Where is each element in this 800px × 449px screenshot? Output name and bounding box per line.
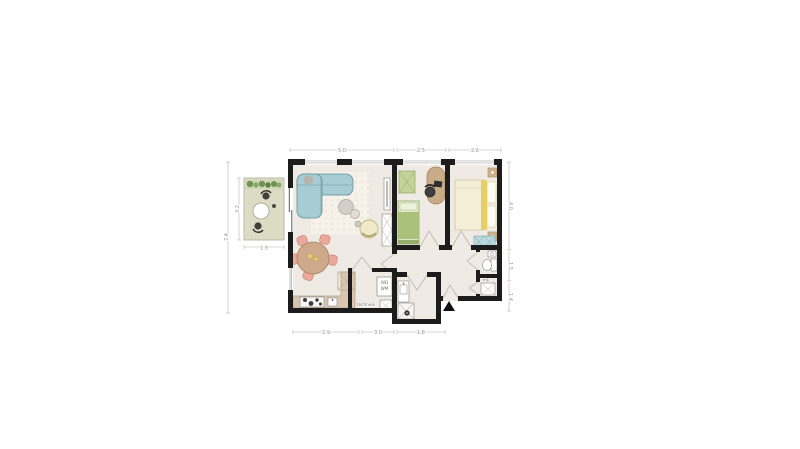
dim-top-1: 5.0 [338, 148, 346, 154]
armchair [360, 220, 378, 238]
entrance-arrow-icon [443, 301, 455, 311]
nightstand [488, 168, 497, 177]
floor-plan-canvas: WD WM techniek mk [0, 0, 800, 449]
techniek-label: techniek [357, 302, 376, 307]
washer-dryer-label-wm: WM [381, 286, 389, 291]
wardrobe-small-bedroom [399, 171, 415, 193]
dim-bottom-3: 1.8 [417, 330, 425, 336]
window [403, 159, 441, 165]
dining-table [297, 242, 329, 274]
cooktop [300, 297, 324, 307]
window [305, 159, 337, 165]
dim-terrace-width: 1.9 [260, 246, 268, 252]
dim-bottom-1: 2.9 [322, 330, 330, 336]
office-chair [425, 185, 435, 197]
dim-right-3: 1.4 [507, 293, 513, 301]
window [288, 268, 293, 290]
bathroom-vanity [398, 281, 409, 302]
washer-dryer: WD WM [377, 277, 392, 296]
dim-right-2: 1.5 [507, 262, 513, 270]
tv-cabinet [384, 178, 390, 210]
meter-closet-label: mk [483, 278, 490, 283]
window [455, 159, 494, 165]
table-decor [308, 254, 312, 258]
window [352, 159, 384, 165]
dim-right-1: 4.0 [507, 202, 513, 210]
pillow [487, 206, 496, 227]
pillow [487, 182, 496, 203]
table-decor [314, 257, 318, 261]
terrace-plant-pot [272, 204, 276, 208]
washer-dryer-label-wd: WD [381, 280, 388, 285]
terrace [244, 178, 284, 240]
kitchen-sink [328, 298, 337, 306]
sliding-door [288, 188, 293, 232]
floor-plan: WD WM techniek mk [0, 0, 800, 449]
dim-terrace-height: 3.2 [235, 205, 241, 213]
toilet-washbasin [488, 251, 496, 257]
dim-top-2: 2.5 [417, 148, 425, 154]
toilet [483, 259, 498, 271]
shower [398, 303, 414, 319]
dim-bottom-2: 3.0 [374, 330, 382, 336]
terrace-table [253, 203, 269, 219]
pillow [400, 203, 417, 210]
dim-left-total: 7.4 [224, 233, 230, 241]
dim-top-3: 2.6 [471, 148, 479, 154]
shelf-unit [382, 214, 392, 246]
meter-closet [481, 283, 495, 295]
single-bed [398, 201, 419, 244]
